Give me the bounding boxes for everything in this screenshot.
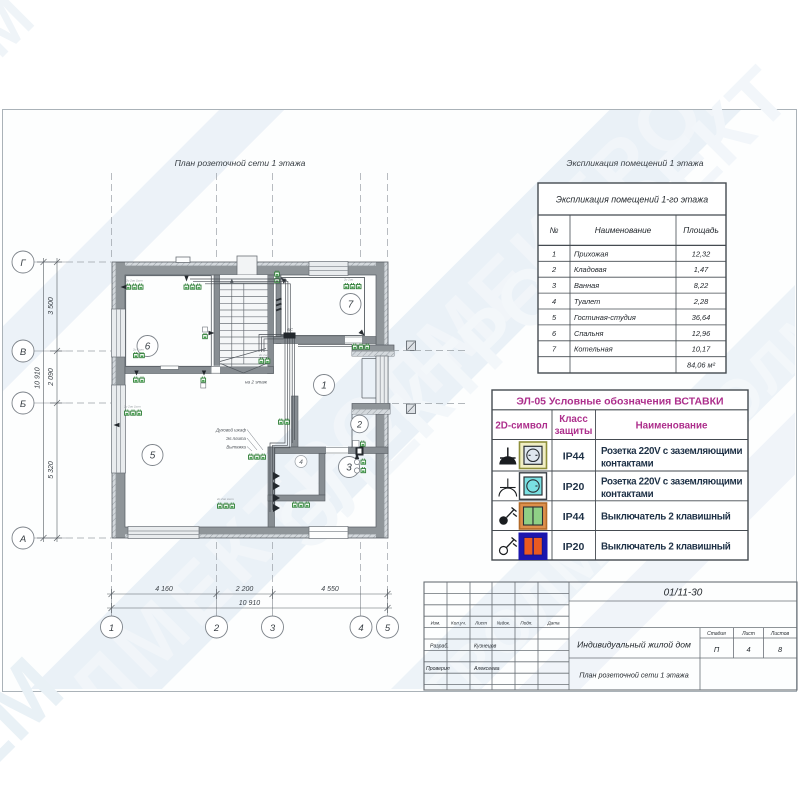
svg-text:Экспликация помещений 1 этажа: Экспликация помещений 1 этажа (567, 158, 704, 168)
svg-text:84,06 м²: 84,06 м² (687, 361, 716, 370)
svg-text:4: 4 (746, 645, 750, 654)
svg-text:Индивидуальный жилой дом: Индивидуальный жилой дом (577, 640, 691, 650)
svg-text:1,47: 1,47 (694, 265, 709, 274)
svg-text:3: 3 (270, 623, 276, 634)
svg-text:3: 3 (346, 463, 352, 474)
svg-text:контактами: контактами (601, 459, 654, 470)
svg-text:контактами: контактами (601, 489, 654, 500)
svg-text:План розеточной сети 1 этажа: План розеточной сети 1 этажа (175, 158, 306, 168)
svg-text:Выключатель 2 клавишный: Выключатель 2 клавишный (601, 512, 731, 523)
svg-text:1: 1 (552, 249, 556, 258)
svg-text:Листов: Листов (770, 631, 790, 637)
svg-text:2D-символ: 2D-символ (495, 421, 547, 432)
svg-text:IP20: IP20 (563, 541, 585, 553)
svg-text:4 550: 4 550 (321, 586, 339, 593)
svg-text:2: 2 (356, 419, 362, 429)
svg-text:IP44: IP44 (563, 451, 585, 463)
svg-text:В: В (20, 347, 27, 358)
svg-text:10,17: 10,17 (692, 345, 711, 354)
svg-text:01/11-30: 01/11-30 (664, 588, 703, 599)
svg-text:Кол.уч.: Кол.уч. (451, 621, 466, 626)
svg-text:на 2 этаж: на 2 этаж (245, 380, 268, 385)
svg-text:2,28: 2,28 (693, 297, 709, 306)
svg-text:LM: LM (0, 0, 47, 98)
svg-text:Спальня: Спальня (574, 329, 604, 338)
svg-text:4: 4 (358, 623, 363, 634)
svg-text:Кузнецов: Кузнецов (474, 644, 497, 650)
svg-text:IP44: IP44 (563, 511, 585, 523)
svg-text:Наименование: Наименование (595, 226, 652, 235)
svg-text:А: А (19, 534, 26, 545)
svg-text:1: 1 (321, 381, 327, 392)
svg-text:Класс: Класс (559, 414, 588, 425)
svg-text:8: 8 (778, 645, 783, 654)
svg-text:Духовой шкаф: Духовой шкаф (215, 428, 246, 433)
svg-text:ЭЛ-05 Условные обозначения ВСТ: ЭЛ-05 Условные обозначения ВСТАВКИ (516, 396, 723, 408)
svg-text:12,96: 12,96 (692, 329, 711, 338)
svg-text:36,64: 36,64 (692, 313, 711, 322)
svg-text:№док.: №док. (497, 621, 511, 626)
svg-text:Розетка 220V с заземляющими: Розетка 220V с заземляющими (601, 446, 743, 457)
svg-text:10 910: 10 910 (239, 600, 261, 607)
svg-text:5 320: 5 320 (48, 461, 55, 479)
svg-text:Котельная: Котельная (574, 345, 613, 354)
svg-text:2о 2оо 1шт: 2о 2оо 1шт (216, 497, 234, 501)
svg-text:2о 2оо 1шт: 2о 2оо 1шт (125, 279, 143, 283)
svg-text:Наименование: Наименование (636, 421, 708, 432)
svg-text:Стадия: Стадия (707, 631, 726, 637)
svg-text:П: П (714, 645, 720, 654)
svg-text:Разраб.: Разраб. (430, 644, 449, 650)
svg-text:2 200: 2 200 (235, 586, 254, 593)
svg-text:Лист: Лист (741, 631, 755, 637)
svg-text:Выключатель 2 клавишный: Выключатель 2 клавишный (601, 542, 731, 553)
svg-text:Эл.плита: Эл.плита (226, 436, 247, 441)
svg-text:2: 2 (551, 265, 556, 274)
svg-text:Кладовая: Кладовая (574, 265, 607, 274)
svg-text:Лист: Лист (474, 621, 487, 626)
svg-text:Экспликация помещений 1-го эта: Экспликация помещений 1-го этажа (556, 195, 708, 205)
svg-text:2: 2 (213, 623, 220, 634)
svg-text:3 500: 3 500 (48, 297, 55, 315)
svg-text:Б: Б (20, 399, 26, 410)
svg-text:2о 1шт: 2о 1шт (132, 348, 144, 352)
svg-text:Дата: Дата (546, 621, 560, 626)
svg-text:7: 7 (348, 300, 354, 311)
svg-text:Туалет: Туалет (574, 297, 600, 306)
svg-text:Алексеева: Алексеева (473, 666, 500, 672)
svg-text:1: 1 (109, 623, 114, 634)
svg-text:Гостиная-студия: Гостиная-студия (574, 313, 636, 322)
svg-text:Проверил: Проверил (426, 666, 450, 672)
svg-text:4: 4 (299, 459, 303, 466)
svg-text:5: 5 (150, 451, 156, 462)
svg-text:№: № (550, 226, 559, 235)
svg-text:Прихожая: Прихожая (574, 249, 608, 258)
svg-text:Изм.: Изм. (431, 621, 441, 626)
svg-text:План розеточной сети 1 этажа: План розеточной сети 1 этажа (579, 671, 688, 680)
svg-text:2о 2оо 1шт: 2о 2оо 1шт (123, 405, 141, 409)
svg-text:12,32: 12,32 (692, 249, 711, 258)
svg-text:6: 6 (145, 342, 151, 353)
svg-text:Площадь: Площадь (683, 226, 719, 235)
svg-text:4: 4 (552, 297, 556, 306)
svg-text:8,22: 8,22 (694, 281, 708, 290)
svg-text:Вытяжка: Вытяжка (226, 445, 246, 450)
svg-text:4 160: 4 160 (155, 586, 173, 593)
svg-text:защиты: защиты (555, 426, 593, 437)
svg-text:5: 5 (385, 623, 391, 634)
svg-text:10 910: 10 910 (35, 367, 42, 389)
svg-text:2 090: 2 090 (48, 368, 55, 387)
svg-text:Г: Г (20, 258, 26, 269)
svg-text:IP20: IP20 (563, 481, 585, 493)
svg-text:2о 1шт: 2о 1шт (258, 353, 270, 357)
svg-text:Подп.: Подп. (520, 621, 532, 626)
svg-text:2о 2оо: 2о 2оо (343, 278, 354, 282)
svg-text:Ванная: Ванная (574, 281, 599, 290)
svg-text:Розетка 220V с заземляющими: Розетка 220V с заземляющими (601, 477, 743, 488)
